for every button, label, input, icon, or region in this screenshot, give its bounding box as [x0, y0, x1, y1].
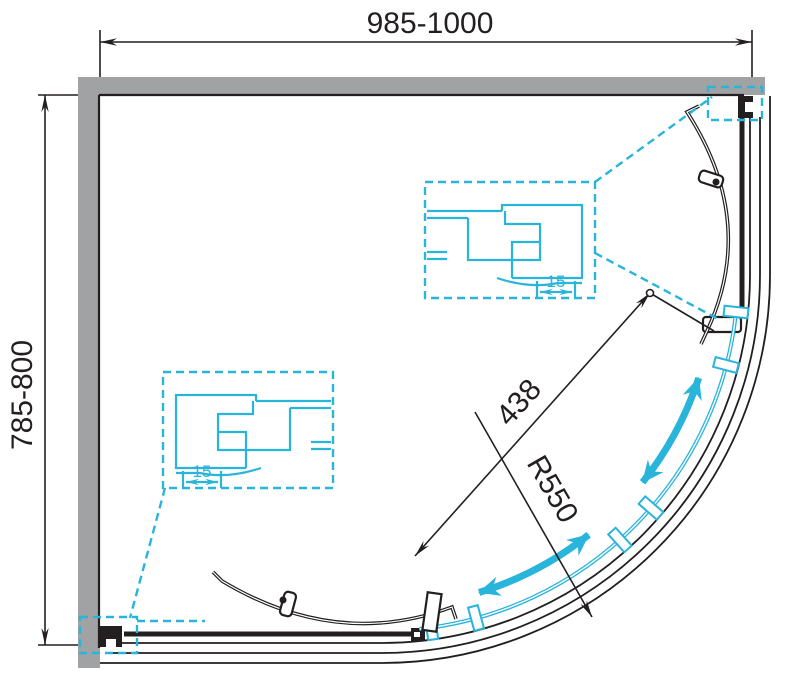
slide-arrow-upper: [643, 378, 699, 482]
door-roller-cyan-1: [713, 357, 739, 373]
technical-drawing-page: 985-1000 785-800 438 R550 15 15: [0, 0, 800, 687]
top-wall: [78, 77, 765, 95]
door-roller-pin-right: [713, 179, 720, 186]
door-end-bracket-top: [724, 306, 749, 318]
fixed-panels: [100, 96, 753, 647]
shower-enclosure-plan: 985-1000 785-800 438 R550 15 15: [0, 0, 800, 687]
wall-profile-top-right: [738, 96, 753, 118]
left-wall: [78, 77, 100, 668]
opening-node: [647, 290, 654, 297]
callout-leaders: [80, 87, 762, 653]
curved-rails: [100, 96, 770, 663]
detail-top-offset-label: 15: [547, 272, 566, 291]
leader-top-b: [595, 253, 720, 320]
depth-dimension-label: 785-800: [6, 340, 39, 450]
door-roller-cyan-4: [468, 605, 484, 631]
leader-top-a: [595, 97, 712, 182]
sliding-door-bottom-open: [213, 572, 456, 624]
sliding-door-right-open: [687, 106, 728, 344]
opening-dimension-label: 438: [490, 373, 548, 432]
door-roller-right: [698, 170, 725, 189]
detail-callout-left: 15: [163, 372, 333, 488]
detail-callout-top: 15: [425, 182, 595, 298]
rail-middle: [108, 117, 760, 653]
radius-dimension-label: R550: [520, 450, 584, 529]
fixed-panel-end-cap-notch: [414, 632, 420, 637]
width-dimension: 985-1000: [100, 7, 752, 77]
depth-dimension: 785-800: [6, 95, 78, 645]
sliding-doors-closed-arc: [419, 306, 748, 640]
detail-left-offset-label: 15: [193, 462, 212, 481]
opening-dimension-line: [415, 293, 650, 556]
width-dimension-label: 985-1000: [367, 7, 494, 40]
wall-profile-bottom-left: [100, 626, 122, 647]
door-roller-pin-bottom: [280, 597, 287, 604]
rail-outer: [100, 96, 770, 663]
leader-left-a: [130, 488, 165, 618]
rail-inner: [122, 117, 750, 643]
